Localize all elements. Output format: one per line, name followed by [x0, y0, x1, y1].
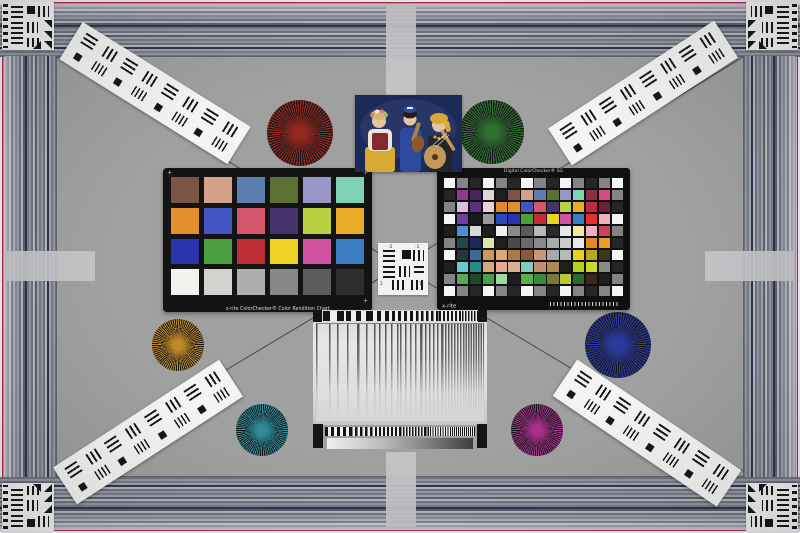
bar-group — [161, 83, 179, 101]
bar-group — [411, 280, 423, 290]
barcode-segment — [400, 427, 425, 436]
classic-color-patch — [237, 239, 265, 265]
classic-color-patch — [303, 269, 331, 295]
black-square — [652, 91, 662, 101]
bar-group — [559, 122, 577, 140]
sg-color-patch — [521, 274, 532, 284]
black-square — [684, 469, 694, 479]
sg-color-patch — [586, 250, 597, 260]
sg-color-patch — [470, 202, 481, 212]
black-square — [402, 250, 411, 259]
classic-color-patch — [336, 269, 364, 295]
sg-color-patch — [560, 214, 571, 224]
black-square — [692, 66, 702, 76]
checker-segment — [416, 311, 439, 321]
classic-color-patch — [270, 177, 298, 203]
portrait-photo — [355, 95, 462, 172]
bar-group — [777, 22, 789, 34]
bar-group — [104, 435, 122, 453]
center-tab-top — [386, 6, 416, 95]
sg-color-patch — [547, 238, 558, 248]
sg-color-patch — [521, 202, 532, 212]
sweep-barcode-strip — [325, 427, 475, 436]
bar-group — [702, 478, 720, 495]
bar-group — [171, 111, 189, 127]
sg-color-patch — [586, 274, 597, 284]
sg-color-patch — [444, 178, 455, 188]
corner-resolution-chart-bottom-left — [2, 483, 54, 531]
classic-color-patch — [303, 177, 331, 203]
portrait-photo-illustration — [355, 95, 462, 172]
sg-color-patch — [483, 262, 494, 272]
sg-color-patch — [457, 262, 468, 272]
bar-group — [414, 266, 424, 276]
classic-color-patch — [237, 177, 265, 203]
bar-group — [574, 370, 592, 388]
classic-color-patch — [336, 208, 364, 234]
bar-group — [623, 425, 641, 442]
sg-color-patch — [560, 202, 571, 212]
classic-color-patch — [303, 239, 331, 265]
sg-color-patch — [560, 250, 571, 260]
black-square — [573, 143, 583, 153]
classic-color-patch — [270, 269, 298, 295]
sg-color-patch — [612, 202, 623, 212]
sg-color-patch — [612, 178, 623, 188]
sg-color-patch — [457, 274, 468, 284]
bar-group — [11, 22, 23, 34]
bar-group — [165, 397, 182, 414]
wedge-mark — [748, 494, 756, 502]
sg-color-patch — [483, 190, 494, 200]
sg-color-patch — [573, 202, 584, 212]
sg-color-patch — [444, 226, 455, 236]
bar-group — [120, 58, 138, 76]
sg-color-patch — [612, 274, 623, 284]
bar-group — [751, 6, 762, 17]
sg-color-patch — [586, 286, 597, 296]
corner-square — [477, 424, 487, 448]
sg-color-patch — [470, 262, 481, 272]
sg-color-patch — [547, 214, 558, 224]
barcode-segment — [450, 427, 475, 436]
black-square — [118, 456, 128, 466]
bar-group — [634, 411, 651, 428]
bar-group — [777, 499, 789, 511]
black-square — [765, 6, 773, 14]
star-gold — [152, 319, 204, 371]
bar-group — [777, 486, 789, 496]
bar-group — [662, 452, 680, 469]
sg-color-patch — [470, 214, 481, 224]
bar-group — [413, 250, 424, 261]
bar-group — [583, 399, 601, 416]
sg-color-patch — [586, 190, 597, 200]
sg-color-patch — [599, 250, 610, 260]
barcode-segment — [325, 427, 350, 436]
classic-color-patch — [171, 208, 199, 234]
sg-color-patch — [573, 250, 584, 260]
bar-group — [131, 86, 149, 102]
sg-color-patch — [573, 226, 584, 236]
classic-color-patch — [171, 239, 199, 265]
classic-color-patch — [204, 269, 232, 295]
sg-color-patch — [560, 226, 571, 236]
sg-title: Digital ColorChecker® SG — [497, 168, 570, 173]
sg-color-patch — [612, 250, 623, 260]
checker-segment — [369, 311, 392, 321]
center-tab-left — [6, 251, 95, 281]
bar-group — [101, 46, 118, 63]
sg-color-patch — [508, 286, 519, 296]
sg-color-patch — [599, 226, 610, 236]
classic-color-patch — [270, 208, 298, 234]
black-square — [566, 389, 576, 399]
corner-square — [313, 424, 323, 448]
sg-color-patch — [534, 226, 545, 236]
sg-color-patch — [586, 226, 597, 236]
classic-color-patch — [204, 208, 232, 234]
sg-color-patch — [444, 190, 455, 200]
sg-color-patch — [508, 274, 519, 284]
wedge-mark — [748, 505, 756, 513]
wedge-mark — [748, 484, 756, 492]
bar-group — [589, 125, 607, 142]
bar-group — [673, 437, 690, 454]
sg-color-patch — [560, 190, 571, 200]
bar-group — [679, 44, 697, 62]
sg-color-patch — [483, 202, 494, 212]
center-resolution-chart: -2 -1 2 1 — [378, 243, 428, 295]
bar-group — [777, 37, 789, 47]
sg-color-patch — [534, 274, 545, 284]
sg-color-patch — [573, 274, 584, 284]
sg-color-patch — [547, 226, 558, 236]
sg-color-patch — [560, 286, 571, 296]
black-square — [157, 430, 167, 440]
tick-column — [792, 4, 797, 48]
star-blue — [585, 312, 651, 378]
barcode-segment — [375, 427, 400, 436]
sg-color-patch — [470, 178, 481, 188]
sg-color-patch — [508, 202, 519, 212]
sg-color-patch — [534, 178, 545, 188]
sg-color-patch — [521, 178, 532, 188]
black-square — [645, 443, 655, 453]
sg-color-patch — [573, 190, 584, 200]
bar-group — [599, 96, 617, 114]
checker-segment — [346, 311, 369, 321]
sg-color-patch — [470, 286, 481, 296]
classic-color-patch — [204, 239, 232, 265]
bar-group — [762, 22, 773, 33]
black-square — [73, 52, 83, 62]
sg-color-patch — [444, 274, 455, 284]
bar-group — [11, 37, 23, 47]
sg-color-patch — [560, 238, 571, 248]
bar-group — [751, 516, 762, 527]
tick-column — [3, 4, 8, 48]
bar-group — [27, 500, 38, 511]
sg-color-patch — [496, 262, 507, 272]
bar-group — [144, 409, 162, 427]
wedge-mark — [44, 484, 52, 492]
bar-group — [639, 70, 657, 88]
sg-color-patch — [457, 178, 468, 188]
sg-color-patch — [599, 214, 610, 224]
bar-group — [713, 464, 730, 481]
sg-color-patch — [573, 286, 584, 296]
sg-color-patch — [444, 214, 455, 224]
sg-color-patch — [457, 238, 468, 248]
sg-color-patch — [496, 214, 507, 224]
star-red — [267, 100, 333, 166]
bar-group — [399, 266, 410, 277]
classic-color-patch — [270, 239, 298, 265]
registration-plus-icon: + — [363, 299, 368, 302]
sg-color-patch — [573, 262, 584, 272]
bar-group — [11, 6, 23, 18]
resolution-label: -2 — [388, 244, 392, 249]
wedge-mark — [748, 41, 756, 49]
bar-group — [184, 383, 202, 401]
bar-group — [392, 280, 404, 290]
bar-group — [213, 386, 231, 403]
sg-color-patch — [586, 262, 597, 272]
sg-color-patch — [457, 226, 468, 236]
classic-color-patch — [237, 208, 265, 234]
sg-color-patch — [534, 286, 545, 296]
checker-segment — [323, 311, 346, 321]
sg-color-patch — [586, 238, 597, 248]
classic-color-patch — [171, 177, 199, 203]
sg-color-patch — [444, 202, 455, 212]
sg-color-patch — [612, 226, 623, 236]
sweep-grayscale-gradient — [327, 438, 473, 449]
bar-group — [38, 516, 49, 527]
classic-color-patch — [336, 177, 364, 203]
star-teal — [236, 404, 288, 456]
bar-group — [64, 461, 82, 479]
sg-color-patch — [508, 262, 519, 272]
black-square — [613, 117, 623, 127]
bar-group — [38, 6, 49, 17]
black-square — [197, 405, 207, 415]
bar-group — [629, 99, 647, 116]
bar-group — [777, 6, 789, 18]
bar-group — [653, 423, 671, 441]
checker-segment — [392, 311, 415, 321]
bar-group — [27, 22, 38, 33]
sg-color-patch — [508, 214, 519, 224]
colorchecker-classic-grid — [171, 177, 364, 295]
bar-group — [205, 371, 222, 388]
sg-color-patch — [521, 190, 532, 200]
sg-color-patch — [444, 262, 455, 272]
test-chart-scene: + + + x-rite ColorChecker® Color Renditi… — [0, 0, 800, 533]
sg-color-patch — [534, 262, 545, 272]
wedge-mark — [44, 41, 52, 49]
sg-color-patch — [586, 178, 597, 188]
sg-color-patch — [521, 238, 532, 248]
sg-color-patch — [573, 178, 584, 188]
sg-color-patch — [470, 226, 481, 236]
sg-color-patch — [470, 190, 481, 200]
sweep-fade-overlay — [316, 323, 484, 421]
black-square — [113, 77, 123, 87]
bar-group — [762, 500, 773, 511]
sg-color-patch — [457, 202, 468, 212]
bar-group — [692, 450, 710, 468]
corner-square — [478, 310, 487, 322]
sg-color-patch — [534, 190, 545, 200]
wedge-mark — [748, 31, 756, 39]
sg-color-patch — [444, 238, 455, 248]
sg-color-patch — [547, 202, 558, 212]
sg-color-patch — [483, 238, 494, 248]
classic-caption: x-rite ColorChecker® Color Rendition Cha… — [226, 305, 310, 311]
sg-color-patch — [457, 214, 468, 224]
sg-color-patch — [573, 214, 584, 224]
sg-color-patch — [534, 250, 545, 260]
bar-group — [660, 58, 677, 75]
barcode-segment — [350, 427, 375, 436]
sg-ruler-ticks — [550, 302, 620, 306]
xrite-logo: x-rite — [442, 303, 456, 309]
bar-group — [11, 515, 23, 527]
tick-column — [3, 485, 8, 529]
sg-color-patch — [496, 250, 507, 260]
sweep-chart — [313, 310, 487, 448]
sweep-main-panel — [313, 310, 487, 425]
sg-color-patch — [483, 226, 494, 236]
wedge-mark — [44, 20, 52, 28]
corner-resolution-chart-top-left — [2, 2, 54, 50]
sg-color-patch — [534, 238, 545, 248]
bar-group — [11, 486, 23, 496]
sg-color-patch — [444, 250, 455, 260]
bar-group — [201, 108, 219, 126]
wedge-mark — [44, 494, 52, 502]
checker-segment — [439, 311, 462, 321]
bar-group — [94, 464, 112, 481]
sg-color-patch — [470, 250, 481, 260]
sg-color-patch — [599, 202, 610, 212]
black-square — [153, 103, 163, 113]
sg-color-patch — [573, 238, 584, 248]
sg-color-patch — [534, 202, 545, 212]
sg-color-patch — [599, 178, 610, 188]
colorchecker-sg-chart: Digital ColorChecker® SG x-rite — [437, 168, 630, 310]
registration-plus-icon: + — [167, 171, 172, 174]
sg-color-patch — [508, 178, 519, 188]
sg-color-patch — [508, 238, 519, 248]
barcode-segment — [425, 427, 450, 436]
bar-group — [668, 73, 686, 90]
bar-group — [620, 84, 637, 101]
bar-group — [580, 109, 597, 126]
sg-color-patch — [560, 274, 571, 284]
bar-group — [142, 71, 159, 88]
corner-resolution-chart-bottom-right — [746, 483, 798, 531]
bar-group — [708, 47, 726, 64]
black-square — [605, 416, 615, 426]
bar-group — [91, 61, 109, 77]
sg-color-patch — [521, 262, 532, 272]
classic-color-patch — [204, 177, 232, 203]
classic-color-patch — [336, 239, 364, 265]
sg-color-patch — [586, 202, 597, 212]
sg-color-patch — [547, 262, 558, 272]
bar-group — [777, 515, 789, 527]
sg-color-patch — [508, 226, 519, 236]
sg-color-patch — [496, 202, 507, 212]
sg-color-patch — [496, 226, 507, 236]
sg-color-patch — [599, 190, 610, 200]
sg-color-patch — [508, 190, 519, 200]
sg-color-patch — [599, 274, 610, 284]
sg-color-patch — [599, 262, 610, 272]
sg-color-patch — [496, 274, 507, 284]
resolution-label: 2 — [380, 281, 383, 286]
sg-color-patch — [483, 286, 494, 296]
colorchecker-classic-chart: + + + x-rite ColorChecker® Color Renditi… — [163, 168, 372, 312]
bar-group — [85, 448, 102, 465]
center-tab-right — [705, 251, 794, 281]
sg-color-patch — [483, 214, 494, 224]
bar-group — [134, 438, 152, 455]
sg-color-patch — [612, 190, 623, 200]
star-magenta — [511, 404, 563, 456]
sg-color-patch — [547, 286, 558, 296]
wedge-mark — [44, 31, 52, 39]
sg-color-patch — [496, 286, 507, 296]
bar-group — [383, 250, 395, 262]
sg-color-patch — [457, 286, 468, 296]
classic-color-patch — [303, 208, 331, 234]
corner-resolution-chart-top-right — [746, 2, 798, 50]
wedge-mark — [748, 20, 756, 28]
bar-group — [222, 121, 239, 138]
sg-color-patch — [457, 250, 468, 260]
sg-color-patch — [612, 214, 623, 224]
sg-color-patch — [483, 178, 494, 188]
sg-color-patch — [521, 286, 532, 296]
sg-color-patch — [560, 262, 571, 272]
sg-color-patch — [521, 214, 532, 224]
sg-color-patch — [586, 214, 597, 224]
classic-color-patch — [237, 269, 265, 295]
sg-color-patch — [599, 286, 610, 296]
sg-color-patch — [534, 214, 545, 224]
black-square — [194, 128, 204, 138]
sg-color-patch — [599, 238, 610, 248]
colorchecker-sg-grid — [444, 178, 623, 296]
sg-color-patch — [547, 250, 558, 260]
bar-group — [700, 32, 717, 49]
sg-color-patch — [612, 238, 623, 248]
sg-color-patch — [496, 178, 507, 188]
sg-color-patch — [560, 178, 571, 188]
sg-color-patch — [457, 190, 468, 200]
bar-group — [182, 96, 199, 113]
classic-color-patch — [171, 269, 199, 295]
center-tab-bottom — [386, 452, 416, 527]
sg-color-patch — [547, 178, 558, 188]
bar-group — [383, 266, 395, 278]
bar-group — [613, 397, 631, 415]
sweep-checker-strip — [323, 311, 485, 321]
